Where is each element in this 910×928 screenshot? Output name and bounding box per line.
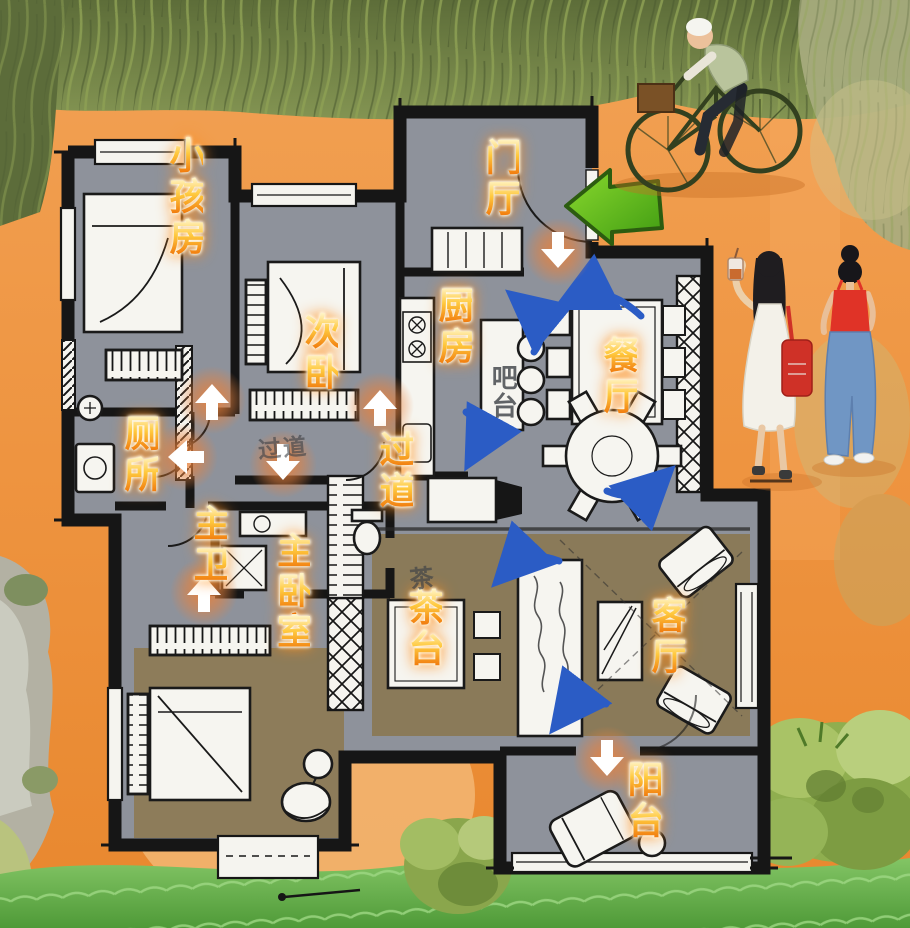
kids-closet	[106, 350, 182, 380]
master-bed	[128, 688, 250, 800]
arrow-left-toilet	[150, 423, 218, 491]
arrow-up-hallway	[346, 372, 414, 440]
tree	[748, 710, 910, 870]
kids-bed	[84, 194, 182, 332]
side-table	[639, 830, 665, 856]
hall-cabinet	[428, 478, 522, 522]
arrow-down-hall	[249, 430, 317, 498]
red-tote-bag	[782, 340, 812, 396]
dining-table	[547, 300, 685, 424]
entry-cabinet	[432, 228, 522, 272]
arrow-down-balcony	[573, 726, 641, 794]
arrow-up-masterbath	[170, 558, 238, 626]
floor-plan-scene	[0, 0, 910, 928]
bicycle-basket	[638, 84, 674, 112]
cyclist-hair	[686, 18, 712, 36]
second-closet	[250, 390, 358, 420]
bar-counter	[481, 320, 544, 430]
master-dresser	[150, 626, 270, 655]
illustration-canvas: 小孩房 次卧 门厅 厨房 餐厅 厕所 过道 主卫 主卧室 茶台 客厅 阳台 吧台…	[0, 0, 910, 928]
arrow-down-entry	[524, 218, 592, 286]
